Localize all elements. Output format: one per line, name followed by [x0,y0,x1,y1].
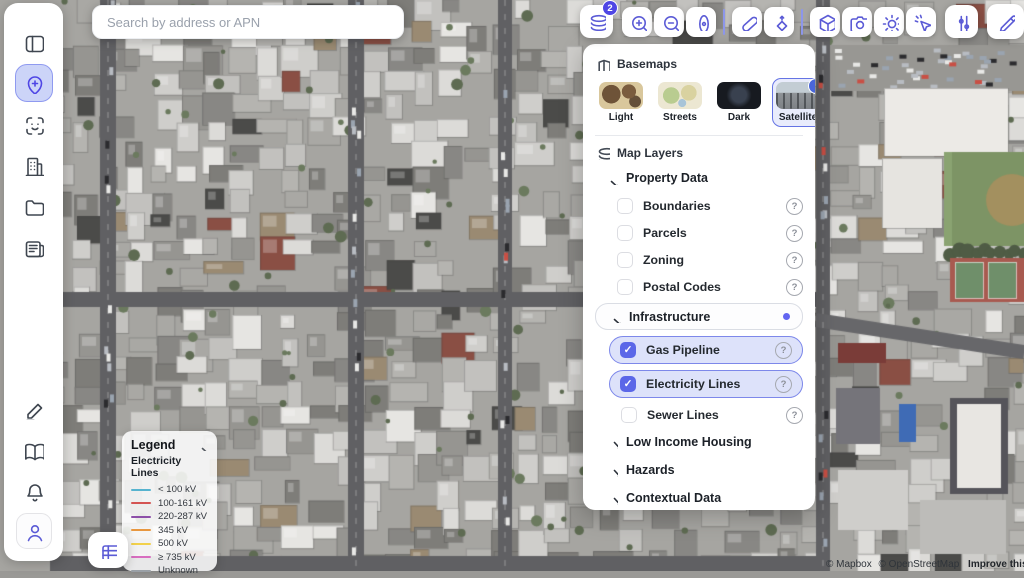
help-icon[interactable] [775,342,792,359]
check-icon [812,82,815,90]
legend-subtitle: Electricity Lines [131,455,208,479]
user-icon [23,521,44,542]
table-grid-icon [99,541,117,559]
legend-header[interactable]: Legend [131,438,208,452]
layer-row-postal-codes[interactable]: Postal Codes [595,276,803,298]
cube-3d-icon [816,12,835,31]
legend-swatch [131,516,151,518]
group-low-income-housing[interactable]: Low Income Housing [595,431,803,453]
group-label: Low Income Housing [626,435,752,449]
layer-row-boundaries[interactable]: Boundaries [595,195,803,217]
help-icon[interactable] [786,279,803,296]
basemap-option-dark[interactable]: Dark [713,78,765,127]
help-icon[interactable] [786,252,803,269]
camera-button[interactable] [842,7,872,37]
group-label: Hazards [626,463,675,477]
zoom-in-button[interactable] [622,7,652,37]
search-input[interactable] [92,5,404,39]
basemap-label: Dark [728,112,750,123]
left-sidebar [4,3,63,561]
layer-label: Electricity Lines [646,377,740,391]
osm-attribution-link[interactable]: © OpenStreetMap [879,559,960,570]
layer-row-gas-pipeline[interactable]: Gas Pipeline [609,336,803,364]
layer-label: Gas Pipeline [646,343,720,357]
sidebar-item-account[interactable] [16,513,52,549]
group-label: Infrastructure [629,310,710,324]
legend-label: 100-161 kV [158,498,207,509]
sidebar-item-library[interactable] [15,431,53,469]
basemap-thumb-dark [717,82,761,109]
basemap-options: Light Streets Dark Satellite [595,78,803,127]
mapbox-attribution-link[interactable]: © Mapbox [826,559,872,570]
zoning-checkbox[interactable] [617,252,633,268]
chevron-down-icon [196,439,208,451]
gas-pipeline-checkbox[interactable] [620,342,636,358]
layer-row-sewer-lines[interactable]: Sewer Lines [595,404,803,426]
location-pin-icon [692,12,711,31]
draw-pencil-button[interactable] [987,4,1024,39]
building-icon [23,155,44,176]
sewer-lines-checkbox[interactable] [621,407,637,423]
sliders-icon [952,12,971,31]
sidebar-item-scan[interactable] [15,105,53,143]
basemap-option-streets[interactable]: Streets [654,78,706,127]
map-tools-group [622,7,936,37]
legend-label: < 100 kV [158,484,196,495]
basemap-thumb-streets [658,82,702,109]
sidebar-item-map-pin[interactable] [15,64,53,102]
layers-icon [587,12,606,31]
zoom-out-icon [660,12,679,31]
chevron-right-icon [605,436,618,449]
chevron-down-icon [605,172,618,185]
panel-divider [595,135,803,136]
legend-label: 345 kV [158,525,188,536]
group-label: Property Data [626,171,708,185]
electricity-lines-checkbox[interactable] [620,376,636,392]
basemap-option-satellite[interactable]: Satellite [772,78,815,127]
boundaries-checkbox[interactable] [617,198,633,214]
legend-swatch [131,543,151,545]
legend-item: 345 kV [131,524,208,538]
legend-panel: Legend Electricity Lines < 100 kV 100-16… [122,431,217,571]
chevron-right-icon [605,492,618,505]
sidebar-item-buildings[interactable] [15,146,53,184]
map-toolbar: 2 [580,4,1024,39]
group-hazards[interactable]: Hazards [595,459,803,481]
basemaps-header: Basemaps [595,56,803,71]
layers-count-badge: 2 [602,0,618,16]
layer-label: Boundaries [643,199,711,213]
map-pin-plus-icon [23,73,44,94]
layers-button[interactable]: 2 [580,5,613,38]
sliders-button[interactable] [945,5,978,38]
legend-item: < 100 kV [131,483,208,497]
toolbar-divider [723,9,725,35]
cursor-click-icon [912,12,931,31]
cube-3d-button[interactable] [810,7,840,37]
eraser-icon [738,12,757,31]
book-open-icon [23,440,44,461]
legend-swatch [131,489,151,491]
legend-label: 500 kV [158,538,188,549]
newspaper-icon [23,237,44,258]
zoom-out-button[interactable] [654,7,684,37]
basemaps-title: Basemaps [617,57,677,71]
legend-swatch [131,502,151,504]
sidebar-item-reports[interactable] [15,228,53,266]
legend-swatch [131,529,151,531]
layer-label: Zoning [643,253,684,267]
zoom-in-icon [628,12,647,31]
legend-label: 220-287 kV [158,511,207,522]
group-infrastructure[interactable]: Infrastructure [595,303,803,330]
sidebar-item-folders[interactable] [15,187,53,225]
map-layers-title: Map Layers [617,146,683,160]
pencil-icon [996,12,1015,31]
basemap-option-light[interactable]: Light [595,78,647,127]
location-pin-button[interactable] [686,7,716,37]
improve-map-link[interactable]: Improve this map [968,559,1024,570]
legend-title: Legend [131,438,175,452]
navigate-diamond-icon [770,12,789,31]
basemap-label: Light [609,112,633,123]
layer-row-parcels[interactable]: Parcels [595,222,803,244]
legend-swatch [131,556,151,558]
map-layers-header: Map Layers [595,145,803,160]
panel-left-icon [23,32,44,53]
layer-row-zoning[interactable]: Zoning [595,249,803,271]
basemap-label: Streets [663,112,697,123]
map-icon [595,56,610,71]
sun-icon [880,12,899,31]
parcels-checkbox[interactable] [617,225,633,241]
legend-item: 100-161 kV [131,497,208,511]
toolbar-divider [801,9,803,35]
chevron-down-icon [608,310,621,323]
legend-item: 500 kV [131,537,208,551]
folder-icon [23,196,44,217]
cursor-click-button[interactable] [906,7,936,37]
sidebar-item-notifications[interactable] [15,472,53,510]
sidebar-item-notes[interactable] [15,390,53,428]
legend-label: ≥ 735 kV [158,552,196,563]
help-icon[interactable] [786,407,803,424]
basemap-label: Satellite [779,112,815,123]
bell-icon [23,481,44,502]
pencil-line-icon [23,399,44,420]
legend-item: 220-287 kV [131,510,208,524]
data-table-button[interactable] [88,532,128,568]
camera-icon [848,12,867,31]
face-scan-icon [23,114,44,135]
group-contextual-data[interactable]: Contextual Data [595,487,803,509]
legend-item: ≥ 735 kV [131,551,208,565]
eraser-button[interactable] [732,7,762,37]
sun-button[interactable] [874,7,904,37]
layers-icon [595,145,610,160]
navigate-button[interactable] [764,7,794,37]
active-layers-dot [783,313,790,320]
postal-codes-checkbox[interactable] [617,279,633,295]
layer-label: Sewer Lines [647,408,719,422]
group-label: Contextual Data [626,491,721,505]
layer-label: Parcels [643,226,687,240]
layer-label: Postal Codes [643,280,721,294]
help-icon[interactable] [786,198,803,215]
chevron-right-icon [605,464,618,477]
group-property-data[interactable]: Property Data [595,167,803,189]
help-icon[interactable] [775,376,792,393]
help-icon[interactable] [786,225,803,242]
layer-row-electricity-lines[interactable]: Electricity Lines [609,370,803,398]
map-attribution: © Mapbox © OpenStreetMap Improve this ma… [826,559,1024,570]
layers-panel: Basemaps Light Streets Dark Satellite Ma… [583,44,815,510]
basemap-thumb-light [599,82,643,109]
sidebar-toggle-button[interactable] [15,23,53,61]
